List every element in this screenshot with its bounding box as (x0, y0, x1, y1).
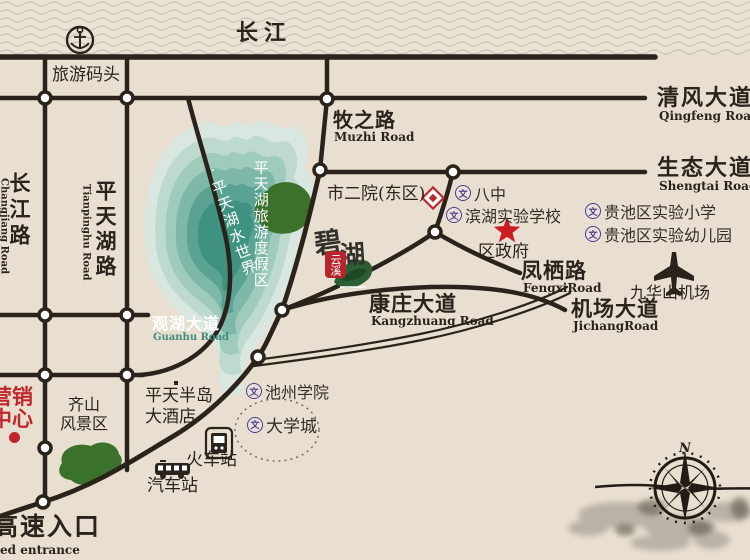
school-icon: 文 (247, 417, 263, 433)
tourist-dock-label: 旅游码头 (52, 67, 120, 85)
qingfeng-road-label-en: Qingfeng Road (659, 110, 750, 123)
highway-entrance-label-en: ed entrance (0, 544, 80, 557)
fengxi-road-label-en: FengxiRoad (523, 282, 601, 295)
qishan-label-line2: 风景区 (60, 416, 108, 433)
school-icon: 文 (585, 226, 601, 242)
shengtai-road-label: 生态大道 (657, 157, 750, 180)
hospital-icon (422, 187, 443, 208)
compass-north-label: N (679, 442, 691, 456)
logo-seal: 云溪 (325, 251, 346, 278)
tianpinghu-road-label-en: Tianpinghu Road (80, 184, 91, 281)
bus-station-label: 汽车站 (147, 478, 198, 496)
school-icon: 文 (446, 207, 462, 223)
school-icon: 文 (455, 185, 471, 201)
school-bazhong-label: 八中 (474, 181, 506, 205)
train-station-label: 火车站 (186, 452, 237, 470)
lake-resort-label: 平天湖旅游度假区 (252, 160, 268, 288)
marketing-center-dot (9, 432, 20, 443)
school-kindergarten: 文 贵池区实验幼儿园 (585, 222, 732, 246)
hospital-label: 市二院(东区) (327, 186, 425, 204)
university-town-row: 文 大学城 (247, 412, 317, 437)
tianpinghu-road-label: 平天湖路 (94, 180, 116, 280)
muzhi-road-line (320, 57, 327, 170)
college-label: 池州学院 (265, 379, 329, 403)
guanhu-road-label: 观湖大道 (152, 316, 220, 333)
school-icon: 文 (585, 203, 601, 219)
location-map: 长江 旅游码头 牧之路 Muzhi Road 清风大道 Qingfeng Roa… (0, 0, 750, 560)
school-bazhong: 文 八中 (455, 181, 506, 205)
qingfeng-road-label: 清风大道 (657, 87, 750, 110)
school-primary: 文 贵池区实验小学 (585, 199, 716, 223)
university-town-label: 大学城 (266, 412, 317, 437)
school-binhu: 文 滨湖实验学校 (446, 203, 561, 227)
highway-entrance-label: 高速入口 (0, 514, 101, 540)
airport-label: 九华山机场 (630, 285, 710, 302)
muzhi-road-label-en: Muzhi Road (334, 131, 414, 144)
guanhu-road-label-en: Guanhu Road (153, 333, 229, 344)
hotel-label-line2: 大酒店 (145, 409, 196, 427)
compass-rose (568, 450, 750, 551)
hotel-marker-dot (174, 381, 178, 385)
changjiang-road-label: 长江路 (8, 172, 30, 250)
qishan-label-line1: 齐山 (68, 397, 100, 414)
river-band (0, 0, 750, 55)
changjiang-road-label-en: Changjiang Road (0, 178, 9, 274)
fengxi-road-label: 凤栖路 (521, 260, 587, 282)
jichang-road-label-en: JichangRoad (573, 320, 658, 333)
school-primary-label: 贵池区实验小学 (604, 199, 716, 223)
school-kindergarten-label: 贵池区实验幼儿园 (604, 222, 732, 246)
qishan-park (59, 443, 122, 485)
hotel-label-line1: 平天半岛 (145, 388, 213, 406)
marketing-center-label: 营销中心 (0, 386, 39, 430)
muzhi-road-label: 牧之路 (333, 110, 396, 131)
school-binhu-label: 滨湖实验学校 (465, 203, 561, 227)
river-label: 长江 (236, 22, 292, 45)
kangzhuang-road-label-en: Kangzhuang Road (371, 315, 494, 328)
college-row: 文 池州学院 (246, 379, 329, 403)
kangzhuang-road-label: 康庄大道 (369, 293, 457, 315)
shengtai-road-label-en: Shengtai Road (659, 180, 750, 193)
school-icon: 文 (246, 383, 262, 399)
